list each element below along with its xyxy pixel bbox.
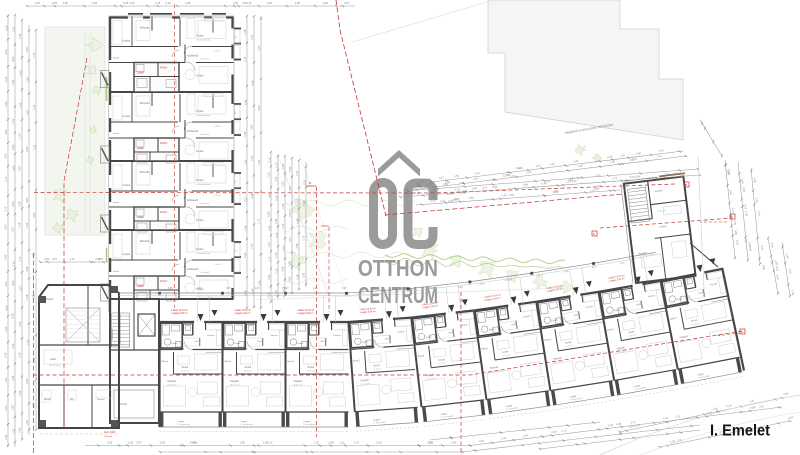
svg-text:1,21: 1,21 — [295, 170, 299, 176]
svg-text:2,87: 2,87 — [288, 185, 292, 191]
svg-text:3,65: 3,65 — [32, 212, 36, 218]
svg-text:0,25: 0,25 — [257, 45, 261, 51]
svg-text:2,05: 2,05 — [92, 1, 98, 5]
svg-text:Közl.: Közl. — [195, 341, 200, 343]
svg-text:1,21: 1,21 — [313, 288, 318, 290]
svg-text:P: laminált: P: laminált — [200, 202, 209, 205]
svg-text:Közlekedő: Közlekedő — [187, 199, 199, 202]
svg-text:0,90: 0,90 — [160, 440, 166, 444]
svg-text:P:ела parketta: P:ела parketta — [196, 114, 211, 117]
svg-text:1,75: 1,75 — [18, 256, 22, 262]
svg-text:Fürdő: Fürdő — [298, 342, 304, 345]
svg-text:0,45: 0,45 — [4, 101, 8, 107]
svg-text:1,38: 1,38 — [25, 294, 29, 300]
svg-text:B: B — [685, 183, 687, 187]
svg-text:1,75: 1,75 — [155, 1, 161, 5]
svg-text:1,38: 1,38 — [239, 440, 245, 444]
svg-text:Tároló: Tároló — [120, 403, 127, 406]
svg-text:Tervezet: Tervezet — [104, 435, 113, 438]
svg-text:5,42: 5,42 — [25, 222, 29, 228]
svg-text:Konyha: Konyha — [208, 335, 216, 337]
svg-text:Lakás: Lakás — [137, 72, 144, 75]
svg-text:2,05: 2,05 — [250, 124, 254, 130]
svg-text:2,05: 2,05 — [52, 1, 58, 5]
svg-text:1,21: 1,21 — [11, 118, 15, 124]
svg-text:Étkező: Étkező — [162, 360, 169, 363]
svg-text:Fürdő: Fürdő — [362, 341, 369, 344]
svg-text:0,25: 0,25 — [274, 232, 278, 238]
svg-text:1,10: 1,10 — [295, 198, 299, 204]
svg-text:Iroda: Iroda — [50, 358, 56, 361]
svg-text:2,87: 2,87 — [748, 246, 753, 252]
svg-text:2,87: 2,87 — [25, 76, 29, 82]
svg-text:2,40: 2,40 — [18, 33, 22, 39]
svg-text:1,50: 1,50 — [243, 159, 247, 165]
svg-text:1,50: 1,50 — [281, 203, 285, 209]
svg-text:1,21: 1,21 — [11, 428, 15, 434]
svg-text:Konyha: Konyha — [122, 253, 131, 256]
svg-text:2,40: 2,40 — [32, 357, 36, 363]
svg-text:1,10: 1,10 — [281, 223, 285, 229]
svg-text:0,45: 0,45 — [18, 70, 22, 76]
svg-text:Loggia 3,94 m²: Loggia 3,94 m² — [298, 312, 314, 315]
svg-text:Étkező: Étkező — [288, 360, 295, 363]
svg-text:1,75: 1,75 — [274, 162, 278, 168]
svg-text:Szoba: Szoba — [308, 367, 315, 369]
svg-text:2,87: 2,87 — [136, 440, 142, 444]
svg-text:0,25: 0,25 — [4, 76, 8, 82]
svg-text:0,25: 0,25 — [428, 440, 434, 444]
svg-text:2,87: 2,87 — [25, 46, 29, 52]
svg-text:2,05: 2,05 — [735, 240, 740, 246]
svg-text:Konyha: Konyha — [122, 115, 131, 118]
svg-text:4,38: 4,38 — [295, 243, 299, 249]
svg-text:0,90: 0,90 — [251, 288, 255, 294]
svg-text:1,21: 1,21 — [416, 184, 422, 188]
svg-text:2,40: 2,40 — [755, 197, 760, 203]
svg-text:2,15 m²: 2,15 m² — [214, 263, 221, 266]
svg-text:Közl.: Közl. — [258, 341, 263, 343]
svg-text:1,10: 1,10 — [25, 339, 29, 345]
svg-text:2,40: 2,40 — [250, 155, 254, 161]
svg-text:0,45: 0,45 — [123, 1, 129, 5]
svg-text:2,87: 2,87 — [436, 191, 442, 195]
svg-text:49,6m²: 49,6m² — [160, 142, 168, 145]
svg-text:4,38: 4,38 — [250, 193, 254, 199]
svg-text:1,21: 1,21 — [11, 26, 15, 32]
svg-text:1,10: 1,10 — [274, 252, 278, 258]
svg-text:1,50: 1,50 — [274, 195, 278, 201]
svg-text:0,60: 0,60 — [32, 252, 36, 258]
svg-text:1,38: 1,38 — [459, 181, 465, 185]
svg-text:0,60: 0,60 — [193, 440, 199, 444]
svg-text:3,07: 3,07 — [18, 285, 22, 291]
svg-text:2,87: 2,87 — [431, 194, 437, 198]
svg-text:1,75: 1,75 — [313, 440, 319, 444]
svg-text:0,25: 0,25 — [107, 440, 113, 444]
svg-text:Szoba: Szoba — [245, 367, 252, 369]
svg-text:1,38: 1,38 — [449, 191, 455, 195]
svg-text:1,75: 1,75 — [757, 211, 762, 217]
svg-text:49,6m²: 49,6m² — [160, 67, 168, 70]
svg-text:0,60: 0,60 — [4, 224, 8, 230]
svg-text:1,10: 1,10 — [69, 257, 75, 261]
svg-text:1,38: 1,38 — [18, 201, 22, 207]
svg-text:2,87: 2,87 — [623, 184, 629, 188]
svg-text:0,90: 0,90 — [492, 185, 498, 189]
svg-text:Közlekedő: Közlekedő — [187, 268, 199, 271]
svg-text:1,38: 1,38 — [263, 440, 269, 444]
svg-text:Szoba: Szoba — [196, 218, 204, 222]
svg-text:1,10: 1,10 — [243, 56, 247, 62]
svg-text:3,65: 3,65 — [635, 174, 641, 178]
svg-text:4,38: 4,38 — [753, 178, 758, 184]
svg-text:3,07: 3,07 — [342, 288, 347, 290]
svg-text:1,38: 1,38 — [295, 1, 301, 5]
svg-text:1,38: 1,38 — [11, 375, 15, 381]
svg-text:3,07: 3,07 — [590, 189, 596, 192]
svg-text:0,90: 0,90 — [553, 189, 559, 193]
svg-text:2,40: 2,40 — [258, 280, 262, 286]
svg-text:Konyha: Konyha — [122, 40, 131, 43]
svg-text:1,38: 1,38 — [295, 274, 299, 280]
svg-text:2,15 m²: 2,15 m² — [214, 125, 221, 128]
svg-text:3,65: 3,65 — [469, 195, 475, 199]
svg-text:3,65: 3,65 — [4, 129, 8, 135]
svg-text:0,25: 0,25 — [302, 179, 306, 185]
svg-text:Felv. 9116: Felv. 9116 — [104, 431, 116, 434]
svg-text:1,21: 1,21 — [440, 198, 446, 202]
svg-text:0,90: 0,90 — [288, 211, 292, 217]
svg-text:A: 21,4 m²: A: 21,4 m² — [50, 364, 60, 367]
svg-text:5,42: 5,42 — [288, 166, 292, 172]
svg-text:0,25: 0,25 — [11, 343, 15, 349]
svg-text:Szoba: Szoba — [196, 247, 204, 251]
svg-text:0,60: 0,60 — [762, 265, 767, 271]
svg-text:1,38: 1,38 — [243, 29, 247, 35]
svg-text:4,38: 4,38 — [25, 266, 29, 272]
svg-text:1,75: 1,75 — [257, 218, 261, 224]
svg-text:4,38: 4,38 — [281, 266, 285, 272]
svg-text:A: 9,5 m²: A: 9,5 m² — [245, 370, 253, 373]
svg-text:0,90: 0,90 — [451, 440, 457, 444]
svg-text:P: laminált: P: laminált — [200, 271, 209, 274]
svg-text:Szoba: Szoba — [182, 367, 189, 369]
svg-text:3,65: 3,65 — [4, 153, 8, 159]
svg-text:3,65: 3,65 — [25, 197, 29, 203]
svg-text:A: 9,5 m²: A: 9,5 m² — [308, 370, 316, 373]
svg-text:1,10: 1,10 — [267, 440, 273, 444]
svg-text:0,25: 0,25 — [281, 181, 285, 187]
svg-text:2,87: 2,87 — [98, 257, 104, 261]
svg-text:Lakás: Lakás — [137, 285, 144, 288]
svg-text:5,42: 5,42 — [302, 272, 306, 278]
svg-text:0,90: 0,90 — [267, 211, 271, 217]
svg-text:0,60: 0,60 — [323, 1, 329, 5]
svg-text:P:ела parketta: P:ела parketta — [196, 183, 211, 186]
svg-text:2,40: 2,40 — [19, 102, 23, 108]
svg-text:OTTHON: OTTHON — [358, 255, 438, 281]
svg-text:1,38: 1,38 — [243, 225, 247, 231]
svg-text:1,75: 1,75 — [246, 1, 252, 5]
svg-text:0,90: 0,90 — [4, 305, 8, 311]
svg-text:3,65: 3,65 — [11, 280, 15, 286]
svg-text:0,25: 0,25 — [4, 25, 8, 31]
svg-text:Loggia: Loggia — [304, 421, 311, 423]
svg-text:5,42: 5,42 — [4, 352, 8, 358]
svg-text:Loggia: Loggia — [178, 421, 185, 423]
svg-text:49,6m²: 49,6m² — [160, 211, 168, 214]
svg-text:P: terr.burkolat: P: terr.burkolat — [304, 423, 317, 426]
svg-text:3,07: 3,07 — [288, 236, 292, 242]
svg-text:1,10: 1,10 — [414, 191, 420, 195]
svg-text:5,42: 5,42 — [4, 434, 8, 440]
svg-text:P:ела parketta: P:ела parketta — [196, 252, 211, 255]
svg-text:0,25: 0,25 — [502, 193, 508, 197]
svg-text:1,21: 1,21 — [33, 144, 37, 150]
svg-text:Kamra: Kamra — [113, 270, 120, 273]
svg-text:0,45: 0,45 — [452, 197, 458, 201]
svg-text:0,45: 0,45 — [243, 99, 247, 105]
svg-text:Fürdő: Fürdő — [235, 342, 241, 345]
svg-text:1,38: 1,38 — [243, 131, 247, 137]
svg-text:0,90: 0,90 — [509, 193, 515, 197]
svg-text:4,38: 4,38 — [371, 288, 376, 290]
svg-text:Lakás: Lakás — [137, 216, 144, 219]
svg-text:P: terr.burkolat: P: terr.burkolat — [241, 423, 254, 426]
svg-text:1,38: 1,38 — [744, 211, 749, 217]
svg-text:Kamra: Kamra — [113, 57, 120, 60]
svg-text:0,45: 0,45 — [4, 326, 8, 332]
svg-text:0,45: 0,45 — [166, 1, 172, 5]
svg-text:0,60: 0,60 — [267, 192, 271, 198]
svg-text:Szoba: Szoba — [196, 34, 204, 38]
svg-text:3,65: 3,65 — [400, 288, 405, 290]
svg-text:0,60: 0,60 — [4, 281, 8, 287]
svg-text:Étkező: Étkező — [225, 360, 232, 363]
svg-text:4,38: 4,38 — [250, 80, 254, 86]
svg-text:49,6m²: 49,6m² — [160, 280, 168, 283]
svg-text:Nappali: Nappali — [231, 380, 240, 383]
svg-text:2,05: 2,05 — [233, 1, 239, 5]
svg-text:Konyha: Konyha — [97, 399, 105, 401]
svg-text:Előszoba: Előszoba — [140, 172, 150, 174]
svg-text:Előszoba: Előszoba — [140, 241, 150, 243]
svg-text:2,05: 2,05 — [727, 169, 732, 175]
svg-text:0,45: 0,45 — [595, 174, 601, 177]
svg-text:2,05: 2,05 — [733, 220, 738, 226]
svg-text:3,07: 3,07 — [267, 241, 271, 247]
svg-text:0,45: 0,45 — [377, 440, 383, 444]
svg-text:1,21: 1,21 — [281, 163, 285, 169]
svg-text:0,90: 0,90 — [281, 245, 285, 251]
svg-text:0,25: 0,25 — [255, 288, 260, 290]
svg-text:Előszoba: Előszoba — [140, 28, 150, 30]
svg-text:1,38: 1,38 — [35, 1, 41, 5]
svg-text:5,42: 5,42 — [729, 190, 734, 196]
svg-text:1,10: 1,10 — [274, 268, 278, 274]
svg-text:0,60: 0,60 — [11, 165, 15, 171]
svg-text:Konyha: Konyha — [122, 184, 131, 187]
svg-text:1,10: 1,10 — [32, 52, 36, 58]
svg-text:2,15 m²: 2,15 m² — [214, 50, 221, 53]
svg-text:1,21: 1,21 — [4, 377, 8, 383]
svg-text:Fürdő: Fürdő — [172, 342, 178, 345]
svg-text:3,65: 3,65 — [257, 105, 261, 111]
svg-text:2,87: 2,87 — [11, 404, 15, 410]
svg-text:5,42: 5,42 — [743, 204, 748, 210]
svg-text:0,90: 0,90 — [4, 49, 8, 55]
svg-text:1,50: 1,50 — [596, 184, 602, 187]
svg-text:B: B — [309, 181, 311, 185]
svg-text:Közl.: Közl. — [321, 341, 326, 343]
svg-text:1,38: 1,38 — [742, 186, 747, 192]
svg-text:3,65: 3,65 — [288, 276, 292, 282]
svg-text:Nappali: Nappali — [168, 380, 177, 383]
svg-text:2,87: 2,87 — [11, 226, 15, 232]
svg-text:1,50: 1,50 — [18, 321, 22, 327]
svg-text:2,40: 2,40 — [731, 207, 736, 213]
svg-text:1,10: 1,10 — [267, 157, 271, 163]
svg-text:0,60: 0,60 — [673, 171, 679, 175]
svg-text:2,87: 2,87 — [25, 109, 29, 115]
svg-text:1,10: 1,10 — [11, 261, 15, 267]
svg-text:0,45: 0,45 — [482, 186, 488, 189]
svg-text:0,90: 0,90 — [11, 79, 15, 85]
svg-text:3,65: 3,65 — [11, 201, 15, 207]
svg-text:Loggia 3,94 m²: Loggia 3,94 m² — [235, 312, 251, 315]
svg-text:2,87: 2,87 — [665, 172, 671, 176]
svg-text:1,10: 1,10 — [274, 290, 278, 296]
svg-text:Szoba: Szoba — [196, 74, 204, 78]
svg-text:1,21: 1,21 — [257, 159, 261, 165]
svg-text:3,65: 3,65 — [226, 288, 231, 290]
svg-text:1,10: 1,10 — [433, 187, 439, 191]
svg-text:P: laminált: P: laminált — [200, 58, 209, 61]
svg-text:3,07: 3,07 — [284, 288, 289, 290]
svg-text:1,21: 1,21 — [339, 440, 345, 444]
svg-text:1,75: 1,75 — [354, 440, 360, 444]
svg-text:1,75: 1,75 — [4, 176, 8, 182]
svg-text:1,38: 1,38 — [128, 440, 134, 444]
svg-text:2,40: 2,40 — [570, 177, 576, 180]
svg-text:3,65: 3,65 — [11, 56, 15, 62]
svg-text:2,40: 2,40 — [267, 225, 271, 231]
svg-text:1,21: 1,21 — [250, 34, 254, 40]
svg-text:Szoba: Szoba — [196, 149, 204, 153]
svg-text:1,38: 1,38 — [267, 1, 273, 5]
svg-text:1,38: 1,38 — [18, 222, 22, 228]
svg-text:Kamra: Kamra — [113, 132, 120, 135]
svg-text:1,10: 1,10 — [18, 133, 22, 139]
svg-text:4,38: 4,38 — [243, 290, 247, 296]
svg-text:1,75: 1,75 — [302, 235, 306, 241]
svg-text:2,40: 2,40 — [274, 218, 278, 224]
svg-text:Közlekedő: Közlekedő — [187, 55, 199, 58]
svg-text:Konyha: Konyha — [271, 335, 279, 337]
svg-text:2,15 m²: 2,15 m² — [214, 194, 221, 197]
svg-text:1,75: 1,75 — [267, 256, 271, 262]
svg-text:0,90: 0,90 — [4, 405, 8, 411]
svg-text:0,90: 0,90 — [11, 144, 15, 150]
svg-text:1,50: 1,50 — [267, 172, 271, 178]
svg-text:5,42: 5,42 — [267, 274, 271, 280]
svg-text:0,25: 0,25 — [129, 1, 135, 5]
svg-text:P:ела parketta: P:ела parketta — [196, 39, 211, 42]
svg-text:Lakás: Lakás — [137, 147, 144, 150]
svg-text:1,21: 1,21 — [274, 176, 278, 182]
svg-text:Előszoba: Előszoba — [140, 103, 150, 105]
svg-text:Mosdó: Mosdó — [44, 399, 52, 401]
svg-text:3,65: 3,65 — [408, 191, 414, 195]
svg-text:2,05: 2,05 — [18, 427, 22, 433]
svg-text:3,07: 3,07 — [344, 1, 350, 5]
svg-text:5,42: 5,42 — [18, 390, 22, 396]
svg-text:Közl.: Közl. — [385, 338, 390, 340]
svg-text:0,90: 0,90 — [25, 146, 29, 152]
svg-text:Szoba: Szoba — [196, 109, 204, 113]
svg-text:A: 9,5 m²: A: 9,5 m² — [182, 370, 190, 373]
svg-text:0,25: 0,25 — [267, 292, 271, 298]
svg-text:4,38: 4,38 — [63, 1, 69, 5]
svg-text:1,21: 1,21 — [32, 104, 36, 110]
svg-text:0,25: 0,25 — [302, 200, 306, 206]
svg-text:5,42: 5,42 — [45, 257, 51, 261]
svg-text:Nappali: Nappali — [361, 379, 370, 383]
svg-text:1,50: 1,50 — [288, 261, 292, 267]
svg-text:5,42: 5,42 — [4, 254, 8, 260]
svg-text:Terasz: Terasz — [46, 298, 54, 301]
svg-text:1,75: 1,75 — [612, 176, 618, 180]
svg-text:1,21: 1,21 — [243, 252, 247, 258]
svg-text:0,90: 0,90 — [734, 230, 739, 236]
svg-text:3,07: 3,07 — [52, 257, 58, 261]
svg-text:I. Emelet: I. Emelet — [710, 423, 771, 440]
svg-text:0,60: 0,60 — [430, 198, 436, 202]
svg-text:0,90: 0,90 — [25, 378, 29, 384]
svg-text:3,07: 3,07 — [243, 196, 247, 202]
svg-text:Nappali: Nappali — [294, 380, 303, 383]
svg-text:1,38: 1,38 — [295, 218, 299, 224]
svg-text:0,60: 0,60 — [740, 178, 745, 184]
svg-text:Loggia 3,94 m²: Loggia 3,94 m² — [172, 312, 188, 315]
svg-text:0,90: 0,90 — [523, 182, 529, 186]
svg-text:2,05: 2,05 — [445, 180, 451, 184]
svg-text:1,75: 1,75 — [4, 206, 8, 212]
svg-text:4,38: 4,38 — [185, 1, 191, 5]
svg-text:Közlekedő: Közlekedő — [187, 130, 199, 133]
svg-text:0,45: 0,45 — [760, 245, 765, 251]
svg-text:3,07: 3,07 — [32, 402, 36, 408]
svg-text:Szoba: Szoba — [196, 178, 204, 182]
svg-text:2,40: 2,40 — [419, 179, 425, 183]
svg-text:1,10: 1,10 — [18, 352, 22, 358]
svg-text:1,21: 1,21 — [510, 175, 516, 178]
svg-text:3,65: 3,65 — [197, 288, 202, 290]
svg-text:P: terr.burkolat: P: terr.burkolat — [178, 423, 191, 426]
svg-text:P: laminált: P: laminált — [200, 133, 209, 136]
svg-text:Konyha: Konyha — [334, 335, 342, 337]
svg-text:4,38: 4,38 — [11, 313, 15, 319]
svg-text:0,60: 0,60 — [429, 288, 434, 290]
svg-text:1,50: 1,50 — [250, 243, 254, 249]
svg-text:A: 9,5 m²: A: 9,5 m² — [374, 367, 382, 371]
svg-text:1,50: 1,50 — [472, 186, 478, 190]
svg-text:Kamra: Kamra — [113, 201, 120, 204]
svg-text:4,38: 4,38 — [329, 440, 335, 444]
svg-text:2,87: 2,87 — [18, 165, 22, 171]
svg-text:Étkező: Étkező — [353, 359, 360, 362]
